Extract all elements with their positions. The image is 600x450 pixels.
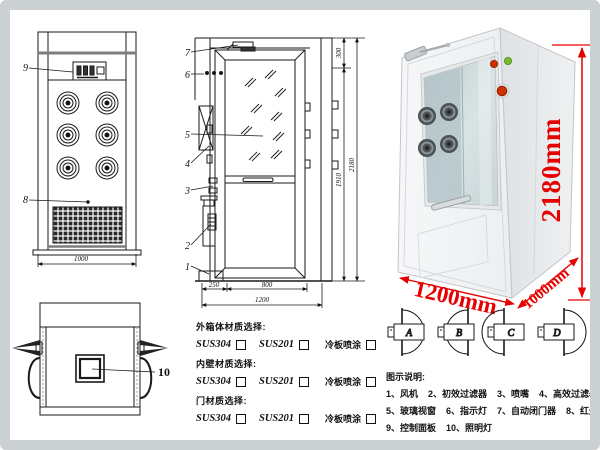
legend-row: 1、风机 2、初效过滤器 3、喷嘴 4、高效过滤器 [386, 387, 596, 400]
control-panel [73, 62, 106, 80]
glass-hatch [241, 70, 286, 161]
material-options-row: SUS304 SUS201 冷板喷涂 [196, 338, 386, 351]
legend-item: 8、红外线感应器 [566, 404, 600, 417]
option-label: 冷板喷涂 [325, 375, 361, 388]
part-label-10: 10 [158, 365, 170, 379]
dim-text-300: 300 [335, 47, 343, 59]
option-label: SUS201 [259, 413, 294, 424]
red-indicator-light [490, 60, 497, 67]
right-handle [140, 358, 151, 398]
plan-view-drawing: 10 [10, 298, 185, 433]
checkbox-inner-sus201[interactable] [299, 377, 309, 387]
door-config-D: D [538, 308, 586, 356]
checkbox-inner-coldplate[interactable] [366, 377, 376, 387]
door-handle [243, 178, 273, 182]
material-group-title: 门材质选择: [196, 394, 386, 407]
legend-row: 5、玻璃视窗 6、指示灯 7、自动闭门器 8、红外线感应器 [386, 404, 596, 417]
checkbox-outer-sus304[interactable] [236, 340, 246, 350]
door-config-label-b: B [456, 328, 462, 339]
material-options-row: SUS304 SUS201 冷板喷涂 [196, 375, 386, 388]
dim-height-2180mm: 2180mm [536, 118, 566, 223]
part-label-7: 7 [185, 48, 191, 59]
material-selection: 外箱体材质选择: SUS304 SUS201 冷板喷涂 内壁材质选择: SUS3… [196, 314, 386, 430]
legend-item: 7、自动闭门器 [497, 404, 556, 417]
door-config-B: B [438, 308, 474, 356]
legend-row: 9、控制面板 10、照明灯 [386, 421, 596, 434]
air-shower-spec-sheet: 9 8 1000 [0, 0, 600, 450]
dim-text-1910: 1910 [335, 173, 343, 188]
option-label: SUS304 [196, 376, 231, 387]
hinge-wings [12, 340, 168, 356]
part-label-1: 1 [185, 262, 190, 273]
part-label-2: 2 [185, 241, 190, 252]
legend-item: 2、初效过滤器 [428, 387, 487, 400]
green-indicator-light [504, 57, 511, 64]
option-label: 冷板喷涂 [325, 338, 361, 351]
part-label-9: 9 [23, 63, 28, 74]
part-label-8: 8 [23, 195, 28, 206]
material-options-row: SUS304 SUS201 冷板喷涂 [196, 412, 386, 425]
part-label-5: 5 [185, 130, 190, 141]
door-config-diagrams: A B C D [386, 302, 586, 366]
legend-item: 10、照明灯 [446, 421, 492, 434]
fan-filter-unit [199, 106, 223, 281]
ceiling-light [76, 355, 104, 382]
checkbox-door-sus201[interactable] [299, 414, 309, 424]
dim-text-800: 800 [262, 281, 273, 289]
legend-item: 5、玻璃视窗 [386, 404, 436, 417]
emergency-button[interactable] [495, 84, 509, 98]
dim-text-1000: 1000 [74, 255, 89, 263]
legend: 图示说明: 1、风机 2、初效过滤器 3、喷嘴 4、高效过滤器 5、玻璃视窗 6… [386, 370, 596, 438]
checkbox-door-coldplate[interactable] [366, 414, 376, 424]
dim-text-250: 250 [209, 281, 220, 289]
legend-item: 1、风机 [386, 387, 418, 400]
return-air-grille [53, 207, 122, 243]
option-label: SUS304 [196, 339, 231, 350]
legend-item: 9、控制面板 [386, 421, 436, 434]
indicator-lights [206, 72, 223, 75]
legend-item: 3、喷嘴 [497, 387, 529, 400]
legend-item: 6、指示灯 [446, 404, 487, 417]
material-group-title: 外箱体材质选择: [196, 320, 386, 333]
checkbox-door-sus304[interactable] [236, 414, 246, 424]
product-photo: 2180mm 1200mm 1000mm [382, 12, 596, 317]
option-label: SUS304 [196, 413, 231, 424]
checkbox-inner-sus304[interactable] [236, 377, 246, 387]
checkbox-outer-coldplate[interactable] [366, 340, 376, 350]
door-config-label-c: C [508, 328, 515, 339]
dim-text-2180: 2180 [348, 158, 356, 173]
front-view-drawing: 9 8 1000 [18, 26, 148, 271]
option-label: SUS201 [259, 376, 294, 387]
legend-title: 图示说明: [386, 370, 596, 383]
part-label-4: 4 [185, 159, 190, 170]
legend-item: 4、高效过滤器 [539, 387, 598, 400]
door-window [421, 52, 501, 210]
material-group-title: 内壁材质选择: [196, 357, 386, 370]
door-config-label-a: A [405, 328, 413, 339]
nozzle-grid [57, 92, 118, 179]
checkbox-outer-sus201[interactable] [299, 340, 309, 350]
door [215, 50, 305, 278]
door-config-label-d: D [552, 328, 561, 339]
left-handle [29, 358, 40, 398]
option-label: SUS201 [259, 339, 294, 350]
section-view-drawing: 7 6 5 4 3 2 1 300 1910 2180 250 800 1200 [183, 30, 373, 318]
dim-text-1200: 1200 [255, 296, 270, 304]
option-label: 冷板喷涂 [325, 412, 361, 425]
part-label-3: 3 [184, 186, 190, 197]
door-config-A: A [388, 308, 424, 356]
part-label-6: 6 [185, 70, 190, 81]
door-config-C: C [482, 308, 524, 356]
